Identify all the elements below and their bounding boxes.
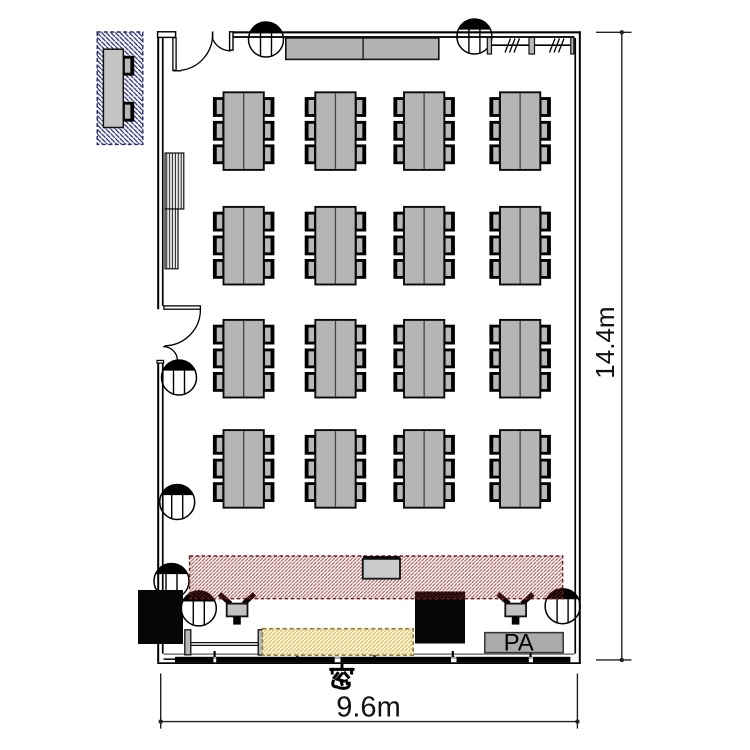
svg-text:PA: PA: [504, 629, 534, 656]
svg-text:9.6m: 9.6m: [336, 692, 400, 724]
svg-text:14.4m: 14.4m: [590, 306, 620, 378]
